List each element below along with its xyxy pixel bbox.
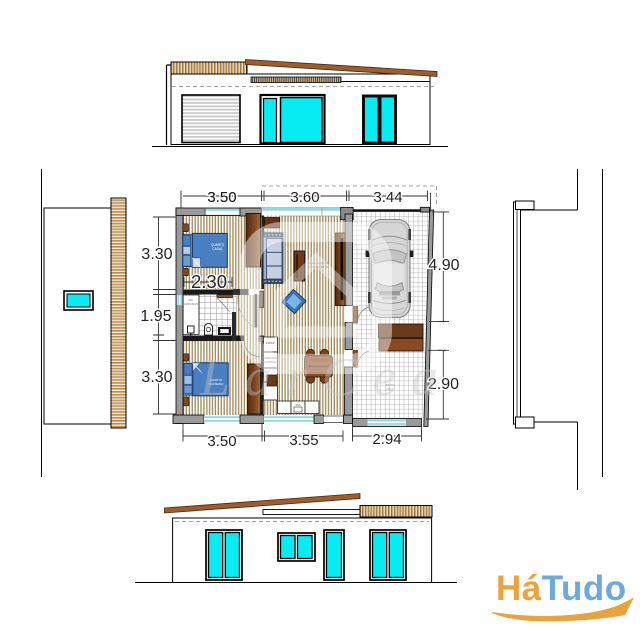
svg-text:3.60: 3.60 (290, 189, 319, 206)
svg-text:2.30: 2.30 (191, 271, 227, 292)
svg-text:FRIGO: FRIGO (266, 341, 276, 345)
svg-text:ARRUMOS: ARRUMOS (184, 302, 198, 306)
svg-text:2.94: 2.94 (372, 431, 401, 448)
svg-text:4.90: 4.90 (428, 257, 459, 274)
svg-text:HáTudo: HáTudo (496, 569, 627, 608)
svg-text:3.44: 3.44 (373, 189, 402, 206)
svg-text:1.95: 1.95 (140, 308, 171, 325)
svg-text:3.30: 3.30 (141, 246, 172, 263)
svg-text:CASAL: CASAL (212, 247, 223, 251)
svg-text:3.55: 3.55 (289, 432, 318, 449)
svg-text:3.50: 3.50 (207, 189, 236, 206)
svg-text:3.50: 3.50 (207, 433, 236, 450)
svg-text:3.30: 3.30 (141, 369, 172, 386)
